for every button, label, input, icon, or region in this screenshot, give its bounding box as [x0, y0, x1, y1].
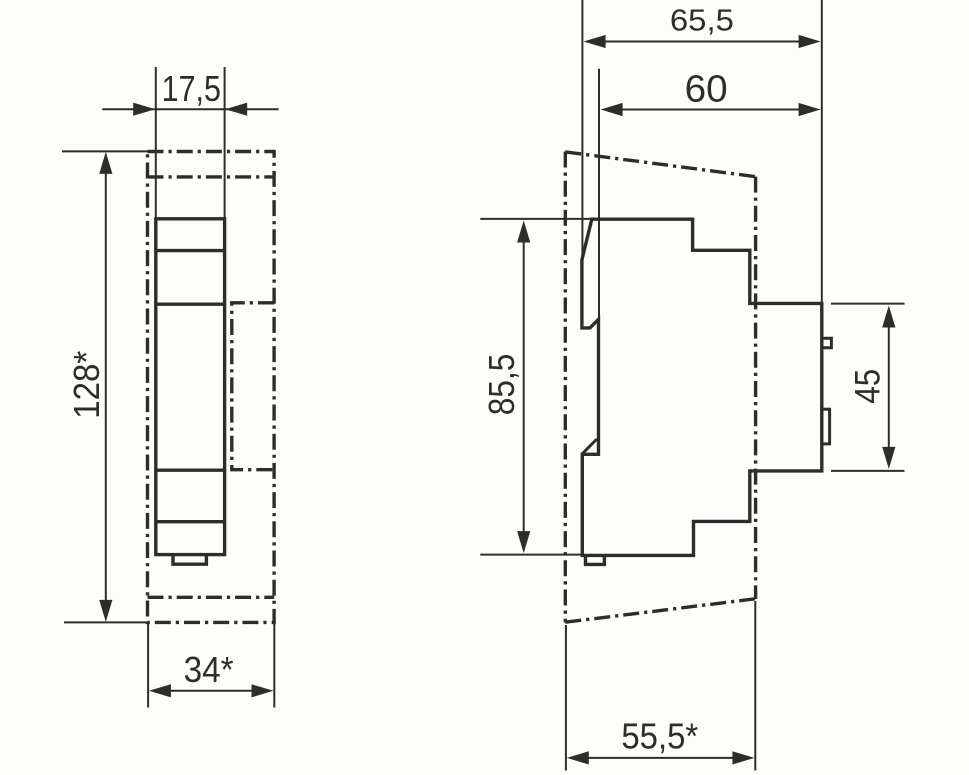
svg-text:65,5: 65,5	[670, 3, 734, 37]
svg-text:17,5: 17,5	[162, 68, 221, 109]
svg-text:60: 60	[685, 68, 728, 110]
svg-text:128*: 128*	[66, 351, 107, 419]
svg-text:45: 45	[849, 369, 888, 404]
svg-text:85,5: 85,5	[482, 354, 522, 416]
svg-text:34*: 34*	[184, 649, 234, 690]
svg-text:55,5*: 55,5*	[621, 716, 698, 757]
